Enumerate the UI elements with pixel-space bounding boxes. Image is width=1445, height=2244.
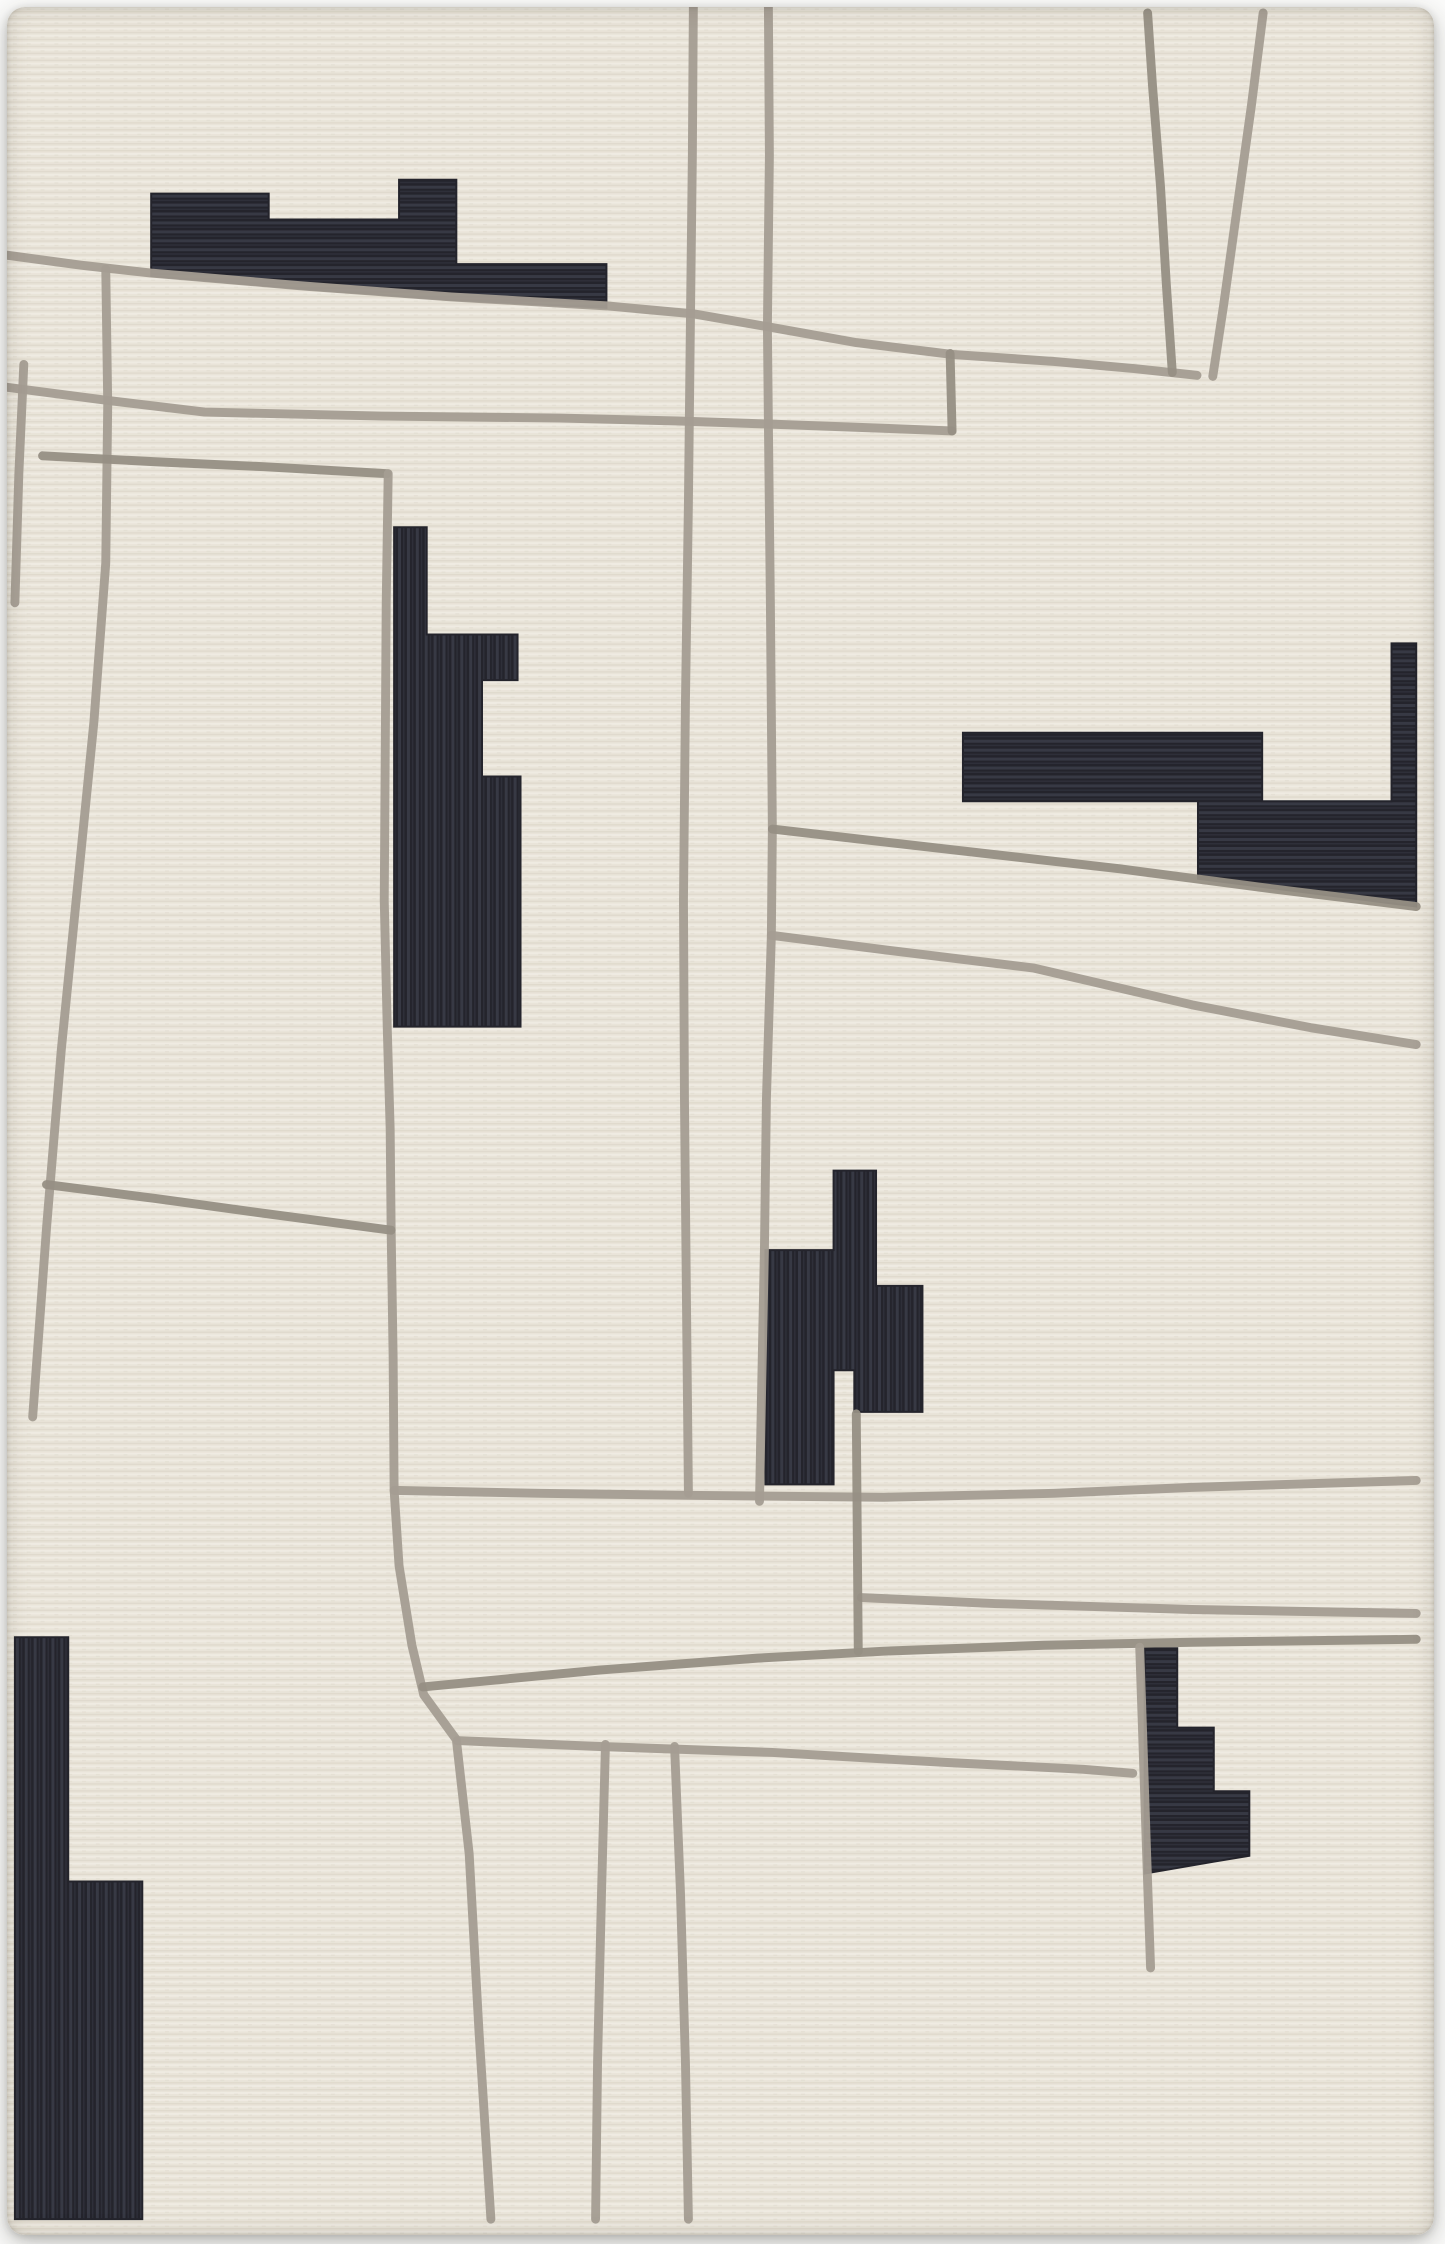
rug-photo <box>7 7 1434 2235</box>
gray-line-center-connector-vertical <box>856 1414 858 1651</box>
rug-svg <box>7 7 1434 2235</box>
gray-line-upper-connector-stub <box>950 354 952 431</box>
photo-background <box>0 0 1445 2244</box>
